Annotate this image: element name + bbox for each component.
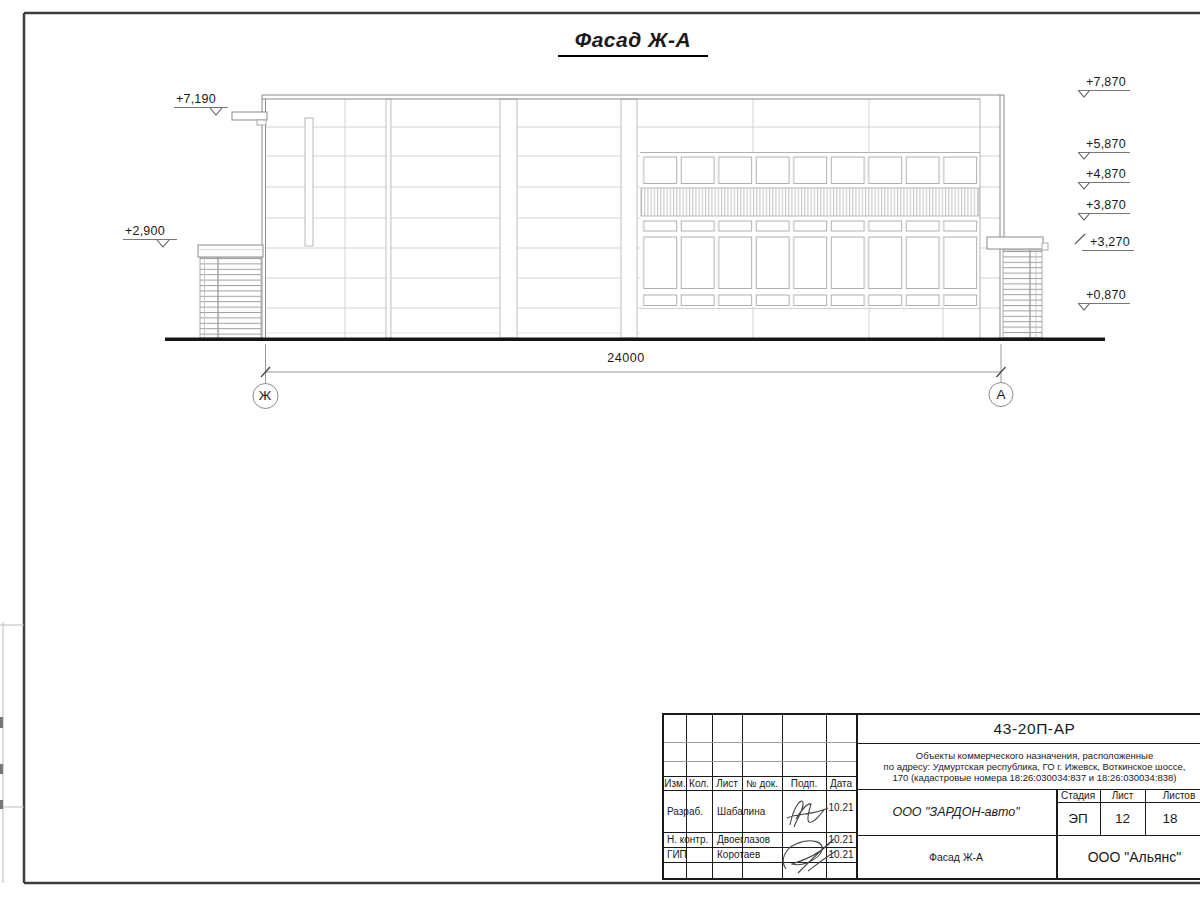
elevation-mark: +3,870 [1078,198,1130,214]
window-grid [640,99,980,338]
tb-line [664,761,856,762]
tb-description-line: 170 (кадастровые номера 18:26:030034:837… [892,772,1176,783]
dimension-label: 24000 [596,351,656,365]
tb-description-line: Объекты коммерческого назначения, распол… [916,750,1153,761]
louver-left [198,245,263,338]
tb-sheet-value: 12 [1100,802,1145,835]
elevation-mark: +7,190 [174,92,228,108]
tb-company: ООО "Альянс" [1056,835,1200,878]
tb-role: Н. контр. [664,832,715,847]
axis-bubble-zh: Ж [252,388,278,403]
tb-role: Разраб. [664,790,715,832]
tb-sheets-value: 18 [1145,802,1195,835]
elevation-mark: +3,270 [1082,235,1134,251]
tb-stage-value: ЭП [1056,802,1100,835]
tb-stage-header: Стадия [1056,789,1100,802]
tb-col-podp: Подп. [782,776,826,790]
tb-drawing-name: Фасад Ж-А [856,835,1056,878]
tb-role: ГИП [664,847,715,862]
tb-client: ООО "ЗАРДОН-авто" [856,789,1056,835]
tb-date: 10.21 [826,798,856,816]
tb-name: Шабалина [714,790,785,832]
signature-kontr-gip [778,831,840,877]
axis-circles [253,383,1013,409]
elevation-mark: +5,870 [1078,137,1130,153]
tb-col-izm: Изм. [664,776,686,790]
tb-line [664,742,856,743]
tb-doc-number: 43-20П-АР [856,715,1200,743]
axis-bubble-a: А [988,387,1014,402]
canopy [232,112,267,125]
tb-col-data: Дата [826,776,856,790]
tb-col-doc: № док. [742,776,782,790]
title-block: Изм. Кол. Лист № док. Подп. Дата Разраб.… [662,713,1200,880]
drawing-title: Фасад Ж-А [558,28,708,57]
signature-shabalina [784,793,830,833]
elevation-mark: +4,870 [1078,167,1130,183]
elevation-mark: +7,870 [1078,75,1130,91]
tb-col-kol: Кол. [686,776,712,790]
louver-right [987,237,1048,338]
tb-sheet-header: Лист [1100,789,1145,802]
elevation-mark: +0,870 [1078,288,1130,304]
ground-line [165,338,1105,342]
tb-name: Двоеглазов [714,832,785,847]
tb-col-list: Лист [712,776,742,790]
tb-description-line: по адресу: Удмуртская республика, ГО г. … [884,761,1186,772]
tb-name: Коротаев [714,847,785,862]
tb-sheets-header: Листов [1145,789,1200,802]
margin-marks [0,622,24,883]
pilaster-bands [305,99,637,338]
elevation-mark: +2,900 [123,224,177,240]
fin-band [641,188,979,216]
tb-description: Объекты коммерческого назначения, распол… [856,743,1200,789]
drawing-sheet: { "drawing": { "title": "Фасад Ж-А", "di… [0,0,1200,900]
